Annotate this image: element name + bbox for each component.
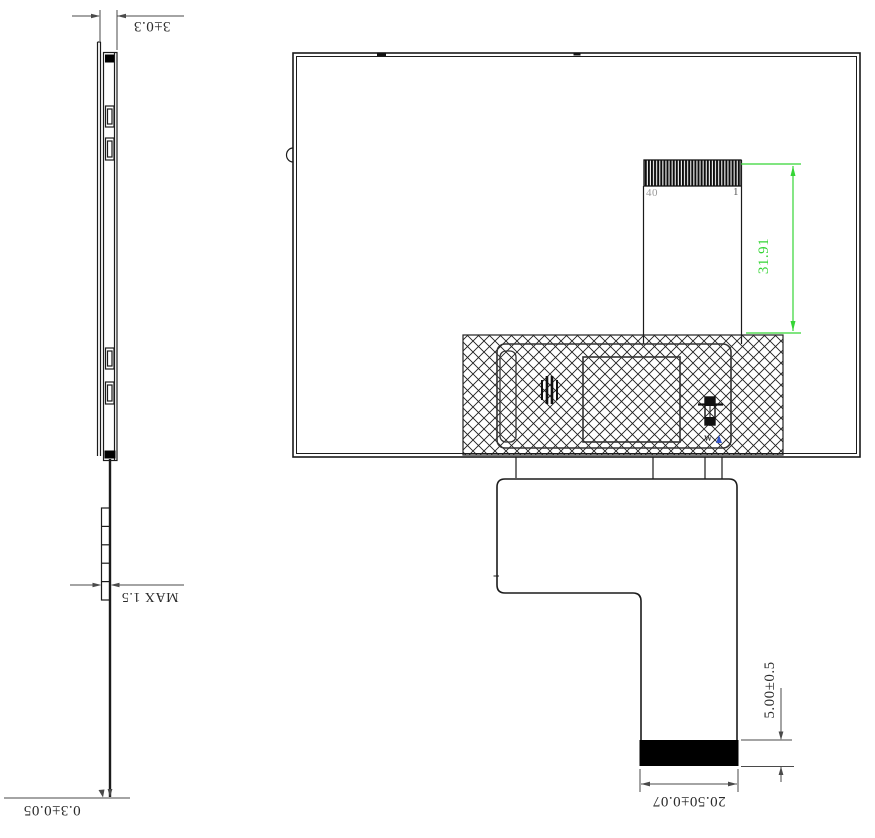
fpc-tail (497, 479, 737, 740)
side-tabs (106, 106, 115, 404)
thickness-dim-label: 3±0.3 (120, 17, 184, 35)
component-mark-label: W (704, 434, 712, 443)
stiffener-dim-label: MAX 1.5 (112, 587, 188, 605)
side-view (98, 42, 118, 797)
fpc-neck (516, 457, 722, 479)
engineering-drawing-page: 3±0.3 MAX 1.5 0.3±0.05 40 1 31.91 5.00±0… (0, 0, 875, 838)
edge-notch (287, 148, 294, 162)
fpc-thickness-dim-label: 0.3±0.05 (4, 800, 100, 819)
tail-connector-bar (640, 740, 739, 766)
stiffener-segments (102, 508, 111, 600)
tail-connector-dim-label: 5.00±0.5 (761, 643, 779, 737)
pin-label-40: 40 (646, 187, 658, 199)
dimension-connector-width (640, 769, 738, 792)
drawing-canvas (0, 0, 875, 838)
pin-label-1: 1 (733, 186, 739, 198)
fold-length-dim-label: 31.91 (755, 221, 773, 291)
connector-width-dim-label: 20.50±0.07 (638, 791, 740, 811)
connector-band (644, 160, 741, 186)
hatch-region (463, 335, 783, 455)
